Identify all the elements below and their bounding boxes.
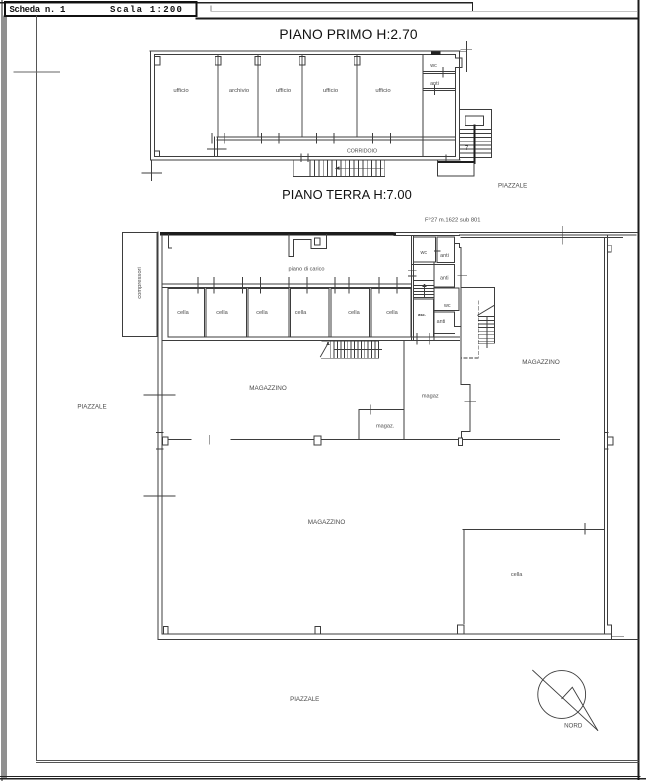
svg-text:magaz.: magaz. (376, 423, 395, 429)
svg-text:wc: wc (429, 63, 437, 69)
svg-text:F°27 m.1622 sub 801: F°27 m.1622 sub 801 (425, 218, 481, 224)
svg-text:anti: anti (440, 276, 449, 282)
svg-text:archivio: archivio (229, 88, 250, 94)
svg-text:piano di carico: piano di carico (288, 267, 324, 273)
svg-text:wc: wc (420, 250, 428, 256)
svg-text:MAGAZZINO: MAGAZZINO (249, 385, 287, 392)
svg-text:magaz: magaz (422, 394, 439, 400)
svg-text:Scheda n. 1: Scheda n. 1 (10, 5, 67, 15)
svg-text:PIAZZALE: PIAZZALE (498, 183, 527, 190)
svg-text:PIAZZALE: PIAZZALE (290, 696, 319, 703)
svg-text:wc: wc (443, 303, 451, 309)
svg-text:PIANO TERRA H:7.00: PIANO TERRA H:7.00 (282, 187, 412, 202)
svg-text:anti: anti (430, 81, 439, 87)
svg-text:ufficio: ufficio (276, 88, 292, 94)
svg-text:ufficio: ufficio (323, 88, 339, 94)
svg-text:cella: cella (386, 310, 398, 316)
svg-text:cella: cella (348, 310, 360, 316)
svg-text:MAGAZZINO: MAGAZZINO (522, 359, 560, 366)
svg-text:cella: cella (511, 572, 523, 578)
svg-text:ufficio: ufficio (173, 88, 189, 94)
svg-text:compressori: compressori (137, 267, 143, 299)
svg-text:PIAZZALE: PIAZZALE (77, 404, 106, 411)
svg-text:PIANO PRIMO H:2.70: PIANO PRIMO H:2.70 (279, 27, 417, 42)
svg-text:cella: cella (295, 310, 307, 316)
svg-text:anti: anti (437, 319, 446, 325)
svg-text:cella: cella (256, 310, 268, 316)
svg-text:cella: cella (177, 310, 189, 316)
svg-text:Scala 1:200: Scala 1:200 (110, 5, 183, 15)
svg-text:CORRIDOIO: CORRIDOIO (347, 149, 377, 155)
svg-text:anti: anti (440, 253, 449, 259)
svg-text:MAGAZZINO: MAGAZZINO (308, 519, 346, 526)
svg-text:NORD: NORD (564, 722, 583, 729)
svg-text:ufficio: ufficio (375, 88, 391, 94)
svg-text:asc.: asc. (418, 312, 426, 317)
svg-text:cella: cella (216, 310, 228, 316)
